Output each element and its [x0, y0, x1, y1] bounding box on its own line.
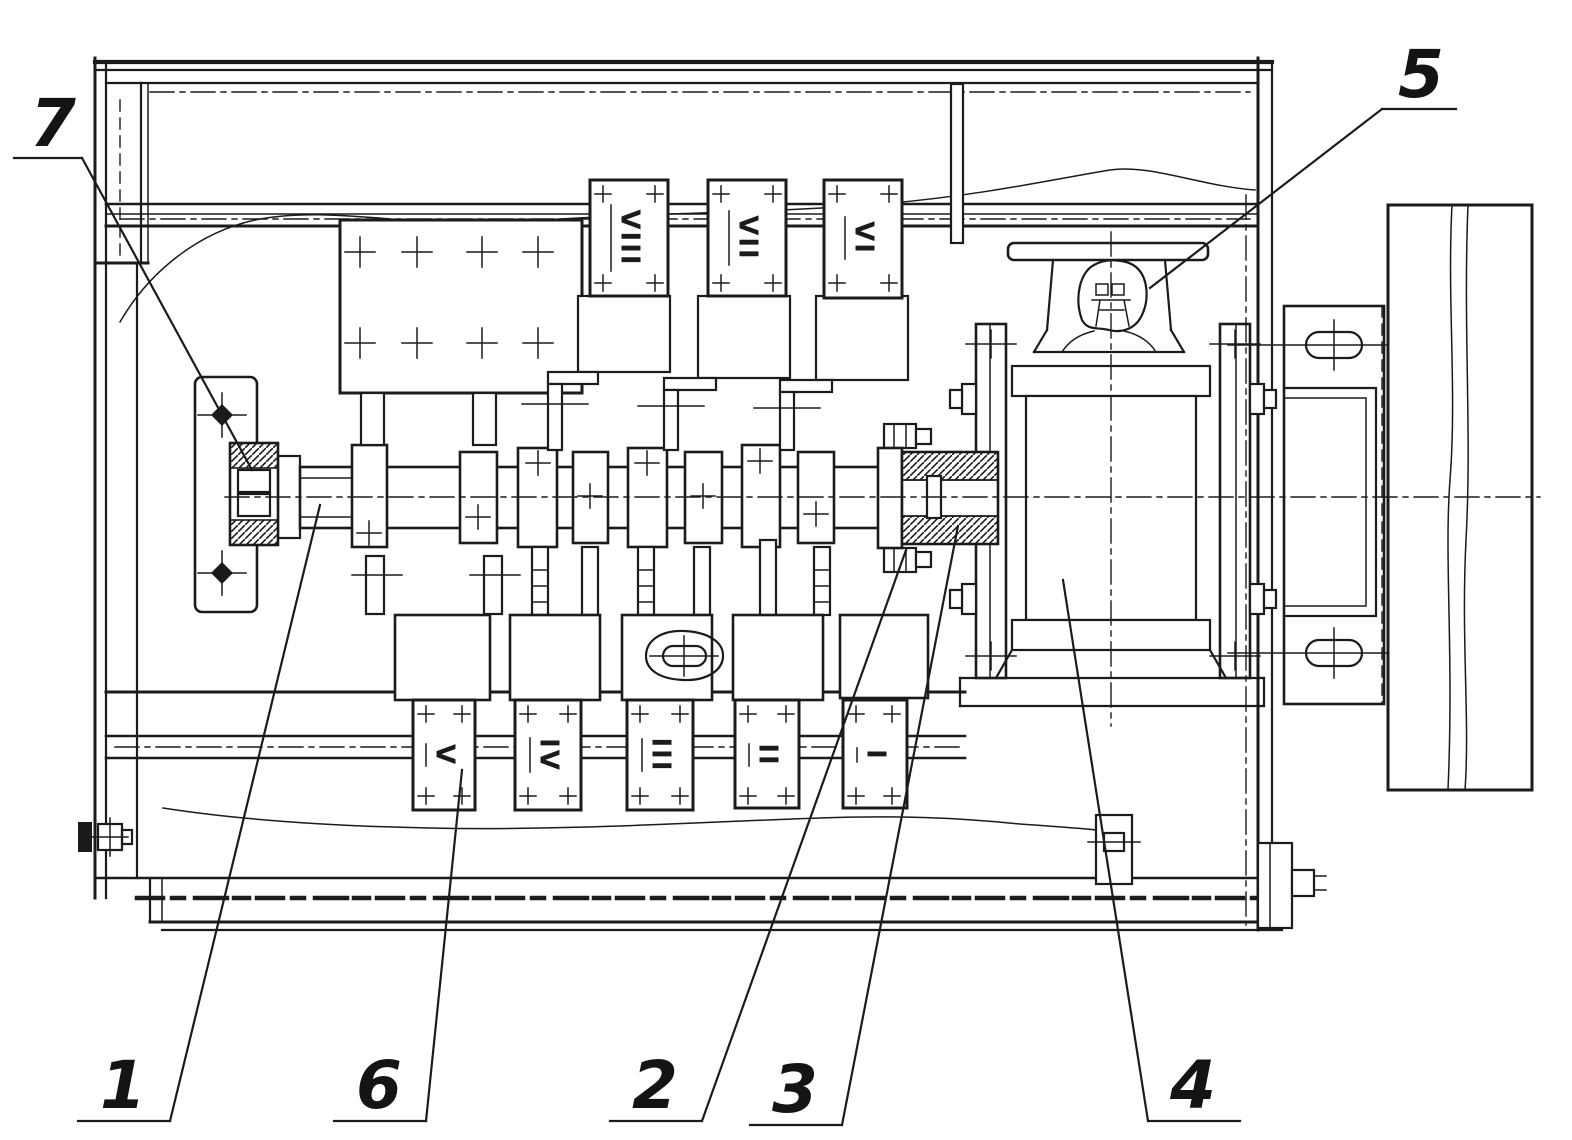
engineering-drawing: VIII VII VI: [0, 0, 1572, 1140]
coupling-bolt-bottom: [884, 548, 931, 572]
upper-station-1: VIII: [590, 180, 668, 296]
coupling-bolt-top: [884, 424, 931, 448]
station-label: VIII: [615, 209, 645, 266]
callout-6: 6: [334, 770, 462, 1124]
leader-line: [426, 770, 462, 1121]
station-label: VII: [733, 215, 763, 260]
clamp-component: [1078, 260, 1146, 331]
coupling-flange: [878, 448, 902, 548]
lower-station-5: I: [843, 700, 907, 808]
lower-station-3: III: [627, 700, 693, 810]
callout-number: 3: [772, 1051, 818, 1128]
mounting-plate-grid: [340, 220, 582, 393]
station-label: III: [646, 737, 676, 772]
upper-station-2: VII: [708, 180, 786, 296]
callout-4: 4: [1063, 580, 1240, 1124]
right-mounting-plate: [1228, 195, 1414, 925]
tool-holders: [395, 615, 928, 700]
left-bearing-support: [195, 377, 278, 612]
callout-number: 4: [1169, 1047, 1216, 1124]
station-label: II: [753, 743, 783, 766]
feed-slides: [578, 296, 908, 380]
callout-number: 6: [356, 1047, 402, 1124]
drawing-page: VIII VII VI: [0, 0, 1572, 1140]
callout-number: 1: [100, 1047, 146, 1124]
cam-followers: [532, 540, 830, 615]
leader-line: [1063, 580, 1148, 1121]
callout-number: 2: [632, 1047, 678, 1124]
corner-fittings: [78, 815, 1326, 928]
station-label: V: [430, 744, 460, 766]
bearing-pedestal-rods: [361, 393, 496, 445]
station-label: IV: [534, 738, 564, 772]
coupling-hub: [902, 452, 998, 544]
hanger-posts: [352, 556, 520, 614]
leader-line: [1150, 109, 1382, 288]
lower-station-2: IV: [515, 700, 581, 810]
pushrods: [522, 372, 832, 450]
upper-station-3: VI: [824, 180, 902, 298]
drive-unit: [950, 84, 1276, 726]
callout-number: 7: [30, 85, 76, 162]
station-label: I: [861, 749, 891, 761]
upper-slide-rail: [106, 204, 1258, 226]
callout-number: 5: [1398, 36, 1444, 113]
station-label: VI: [849, 221, 879, 255]
lower-station-1: V: [413, 700, 475, 810]
lower-station-4: II: [735, 700, 799, 808]
support-column: [951, 84, 963, 243]
